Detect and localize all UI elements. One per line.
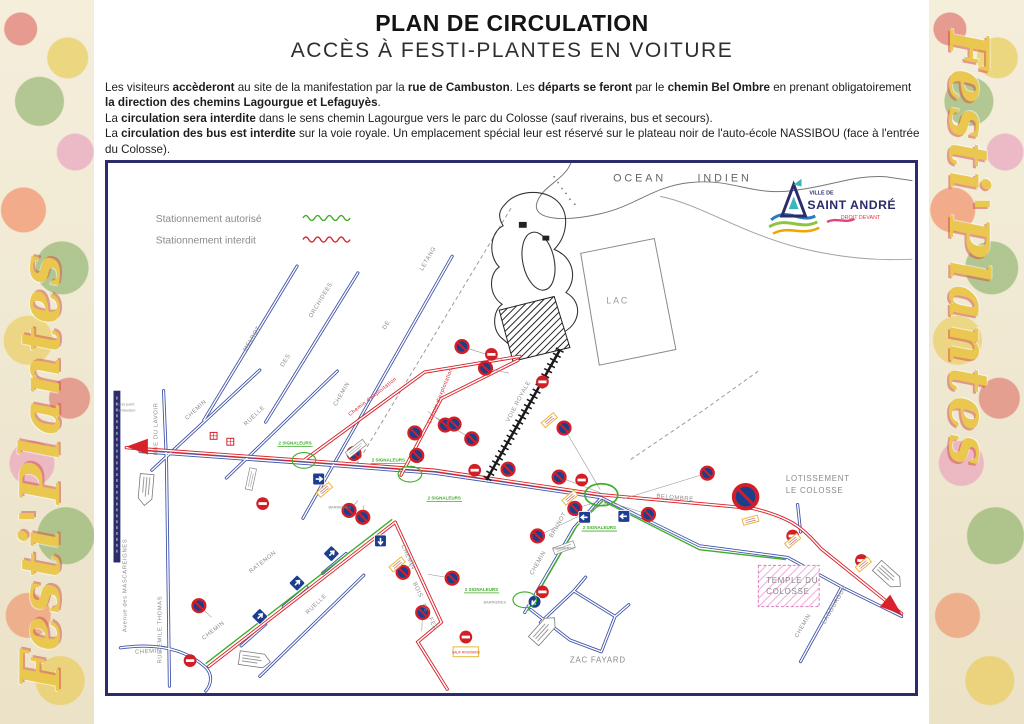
no-parking-sign <box>410 449 423 462</box>
sign-leader-lines <box>199 347 707 632</box>
no-entry-sign <box>485 348 498 361</box>
route-barree-sign <box>872 560 905 591</box>
map-svg: TEMPLE DU COLOSSE SAUF RIVERAINS Station… <box>108 163 915 693</box>
map-legend: Stationnement autorisé Stationnement int… <box>156 214 350 247</box>
no-parking-sign <box>558 422 571 435</box>
page-subtitle: ACCÈS À FESTI-PLANTES EN VOITURE <box>97 39 927 63</box>
temple-label-2: COLOSSE <box>766 587 809 596</box>
sauf-riverains-sign: SAUF RIVERAINS <box>452 647 481 657</box>
signaleurs-note-1: 2 SIGNALEURS <box>278 441 311 446</box>
no-parking-sign <box>356 511 369 524</box>
header: PLAN DE CIRCULATION ACCÈS À FESTI-PLANTE… <box>97 10 927 63</box>
logo-ville-de: VILLE DE <box>809 190 834 196</box>
direction-arrow-sign <box>618 510 630 522</box>
no-parking-sign <box>479 362 492 375</box>
legend-authorized-swatch <box>303 216 350 221</box>
no-parking-sign-large <box>734 485 758 509</box>
no-parking-sign <box>193 599 206 612</box>
barrieres-note-1: BARRIERES <box>328 504 351 509</box>
no-parking-sign <box>465 432 478 445</box>
ocean-label-2: INDIEN <box>697 173 751 185</box>
barrieres-note-2: BARRIERES <box>484 600 507 605</box>
floral-border-right: Festi'Plantes <box>929 0 1024 724</box>
street-label-melrot: MELROT <box>243 325 263 352</box>
no-entry-sign <box>575 474 588 487</box>
legend-forbidden-label: Stationnement interdit <box>156 235 256 246</box>
no-parking-sign <box>553 471 566 484</box>
lotissement-label-1: LOTISSEMENT <box>786 474 850 483</box>
street-label-rue-du-lavoir: RUE DU LAVOIR <box>154 403 160 456</box>
church-marker <box>227 438 234 445</box>
street-label-bois-de-fer-2: BOIS <box>411 581 423 598</box>
street-label-chemin-brunot-1: CHEMIN <box>529 550 548 576</box>
sign-caption-label <box>541 413 557 428</box>
zac-fayard-label: ZAC FAYARD <box>570 656 626 665</box>
street-label-chemin-ratenon-1: CHEMIN <box>201 620 226 641</box>
street-label-chemin-lagourgue-1: CHEMIN <box>794 613 813 639</box>
street-label-chemin-letang-2: DE <box>382 320 392 331</box>
street-label-orchidees: ORCHIDEES <box>308 282 334 320</box>
legend-authorized-label: Stationnement autorisé <box>156 214 262 225</box>
festi-plantes-script-left: Festi'Plantes <box>8 30 72 690</box>
no-entry-sign <box>536 375 549 388</box>
no-parking-sign <box>502 463 515 476</box>
no-parking-sign <box>531 530 544 543</box>
no-parking-sign <box>456 340 469 353</box>
route-barree-sign <box>238 651 271 669</box>
lake-label: LAC <box>606 295 629 305</box>
lotissement-label-2: LE COLOSSE <box>786 486 844 495</box>
route-barree-sign <box>138 474 154 506</box>
signaleurs-note-3: 2 SIGNALEURS <box>428 496 461 501</box>
street-label-chemin-ratenon-2: RATENON <box>248 550 277 575</box>
rond-point-label-1: Rond point <box>115 401 135 406</box>
page-title: PLAN DE CIRCULATION <box>97 10 927 37</box>
street-label-des: DES <box>280 353 292 368</box>
street-label-ruelle-1: RUELLE <box>243 405 266 428</box>
street-label-mascareignes: Avenue des MASCAREIGNES <box>122 539 128 632</box>
temple-label-1: TEMPLE DU <box>766 576 818 585</box>
street-label-chemin-brunot-2: BRUNOT <box>549 511 568 539</box>
no-parking-sign <box>408 427 421 440</box>
no-entry-sign <box>468 464 481 477</box>
barrieres-note-3: BARRIERES <box>552 546 575 551</box>
logo-name: SAINT ANDRÉ <box>807 197 896 212</box>
logo-wave-yellow <box>773 228 819 234</box>
route-direction-arrow <box>126 439 148 455</box>
street-label-exploitation-2: Chemin d'exploitation <box>427 367 455 424</box>
logo-wave-green <box>769 222 817 227</box>
no-entry-sign <box>256 497 269 510</box>
signaleurs-note-4: 2 SIGNALEURS <box>583 525 616 530</box>
logo-a-inner <box>789 196 799 209</box>
no-parking-sign <box>448 418 461 431</box>
legend-forbidden-swatch <box>303 237 350 242</box>
street-label-chemin-letang-1: CHEMIN <box>333 381 352 407</box>
intro-paragraph: Les visiteurs accèderont au site de la m… <box>105 80 923 157</box>
street-label-bois-de-fer-4: FER <box>427 617 438 632</box>
signaleurs-note-5: 2 SIGNALEURS <box>465 587 498 592</box>
street-label-chemin-lagourgue-2: LAGOURGUE <box>822 585 849 625</box>
church-marker <box>210 432 217 439</box>
traffic-signs-layer <box>126 340 906 669</box>
saint-andre-logo: VILLE DE SAINT ANDRÉ DROIT DEVANT <box>769 179 896 234</box>
direction-arrow-sign <box>375 535 387 547</box>
ocean-label-1: OCEAN <box>613 173 666 185</box>
logo-tagline: DROIT DEVANT <box>841 215 881 221</box>
circulation-map: TEMPLE DU COLOSSE SAUF RIVERAINS Station… <box>105 160 918 696</box>
no-parking-sign <box>701 467 714 480</box>
direction-arrow-sign <box>579 511 591 523</box>
no-parking-sign <box>642 508 655 521</box>
signaleurs-note-2: 2 SIGNALEURS <box>372 457 405 462</box>
rond-point-label-2: Cambuston <box>115 407 135 412</box>
no-entry-sign <box>459 631 472 644</box>
street-label-voie-royale: VOIE ROYALE <box>506 380 533 423</box>
direction-arrow-sign <box>313 473 325 485</box>
circulation-plan-poster: Festi'Plantes Festi'Plantes PLAN DE CIRC… <box>0 0 1024 724</box>
no-entry-sign <box>184 654 197 667</box>
festi-plantes-script-right: Festi'Plantes <box>937 30 1001 690</box>
no-parking-sign <box>446 572 459 585</box>
temple-du-colosse: TEMPLE DU COLOSSE <box>758 565 819 606</box>
floral-border-left: Festi'Plantes <box>0 0 94 724</box>
street-label-chemin-letang-3: LETANG <box>419 246 438 272</box>
parc-du-colosse <box>491 192 577 361</box>
avenue-mascareignes-bar <box>114 391 121 563</box>
sign-caption-label <box>742 515 759 525</box>
sauf-riverains-label: SAUF RIVERAINS <box>452 650 481 654</box>
small-label <box>245 468 256 491</box>
